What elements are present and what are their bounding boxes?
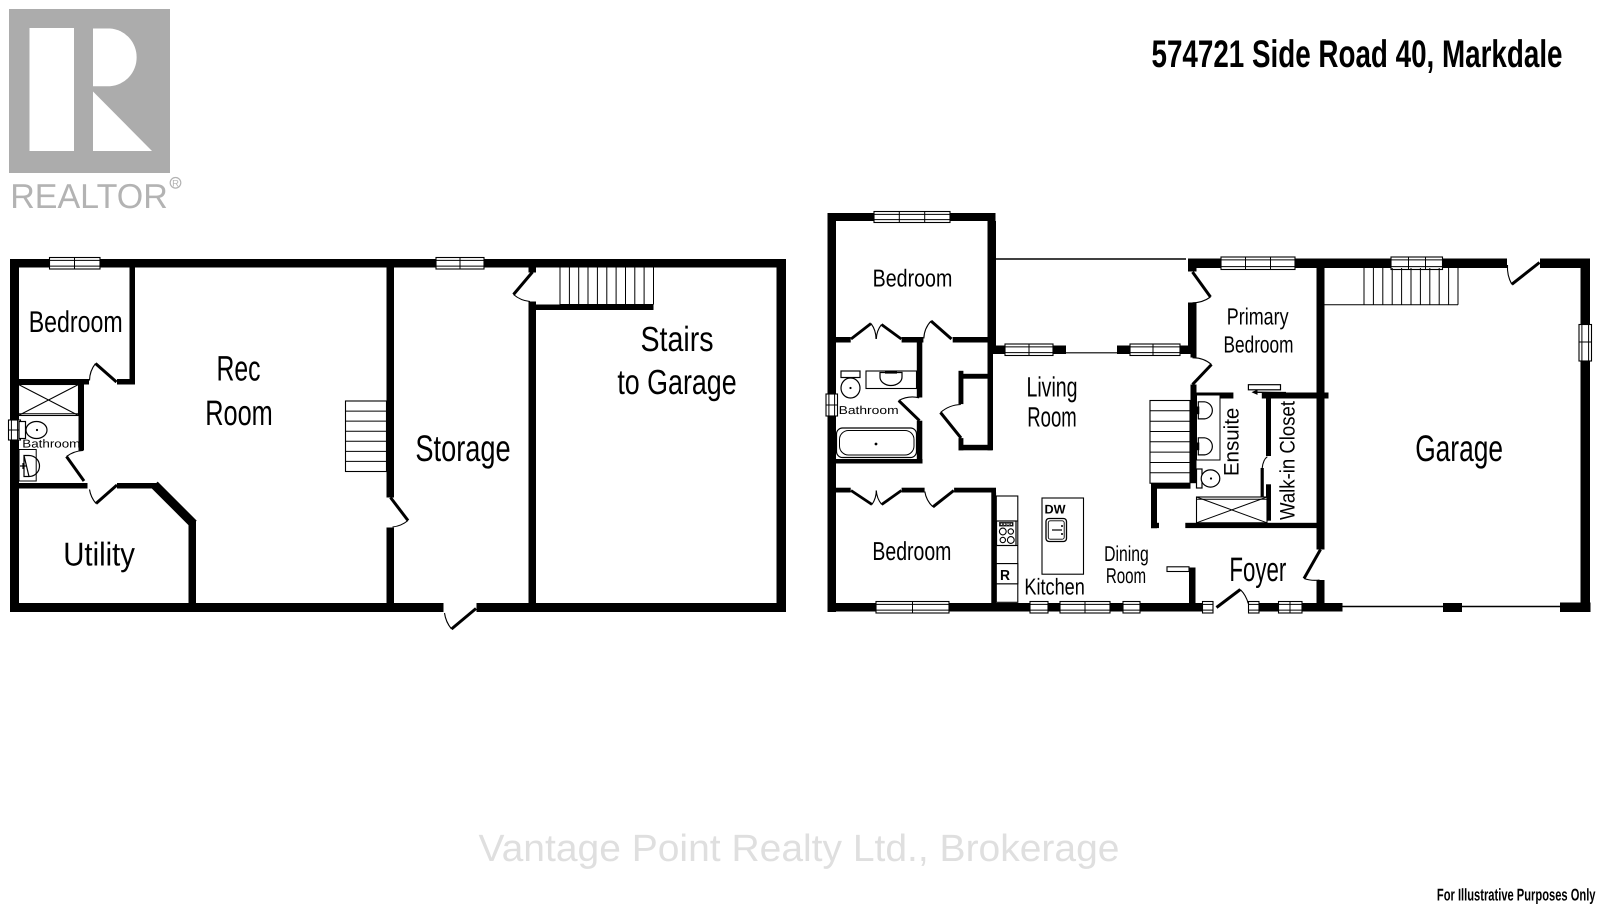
svg-text:For Illustrative Purposes Only: For Illustrative Purposes Only [1437,885,1596,904]
svg-text:Bathroom: Bathroom [839,405,899,417]
svg-text:R: R [1000,568,1010,584]
svg-text:REALTOR: REALTOR [10,178,168,216]
svg-text:Bathroom: Bathroom [22,438,80,450]
svg-text:Bedroom: Bedroom [873,265,953,292]
svg-text:Bedroom: Bedroom [872,536,951,566]
svg-text:574721 Side Road 40, Markdale: 574721 Side Road 40, Markdale [1152,33,1563,76]
svg-text:Bedroom: Bedroom [29,306,123,339]
svg-text:Garage: Garage [1415,428,1503,469]
svg-text:Vantage Point Realty Ltd., Bro: Vantage Point Realty Ltd., Brokerage [479,828,1120,870]
svg-text:Bedroom: Bedroom [1224,332,1294,358]
svg-text:R: R [172,178,179,189]
svg-text:DW: DW [1045,503,1066,517]
svg-text:Walk-in Closet: Walk-in Closet [1277,401,1300,520]
svg-text:Living: Living [1026,372,1077,403]
svg-text:Room: Room [205,393,273,433]
svg-text:Rec: Rec [217,349,261,389]
svg-text:Primary: Primary [1227,304,1289,330]
svg-text:Dining: Dining [1104,542,1149,566]
svg-text:Room: Room [1027,402,1076,433]
svg-text:Room: Room [1106,564,1146,588]
svg-text:Foyer: Foyer [1229,551,1286,589]
svg-text:to Garage: to Garage [617,363,736,402]
svg-text:Kitchen: Kitchen [1024,573,1084,599]
svg-text:Utility: Utility [63,536,135,573]
svg-text:Ensuite: Ensuite [1220,408,1243,477]
svg-text:Storage: Storage [415,428,510,469]
svg-text:Stairs: Stairs [640,320,713,359]
